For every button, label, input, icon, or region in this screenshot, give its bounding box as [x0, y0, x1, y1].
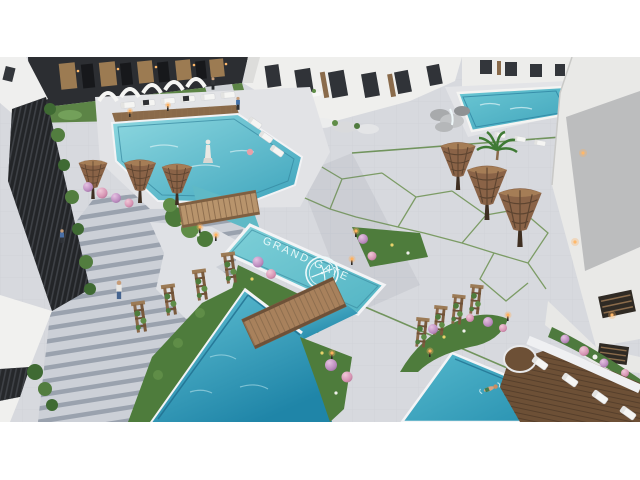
scene-svg: GRAND GATE — [0, 57, 640, 422]
upper-left-pool-area — [95, 79, 330, 209]
person-on-stairs — [60, 229, 64, 243]
architectural-render: GRAND GATE — [0, 0, 640, 480]
person-poolside — [236, 97, 240, 110]
courtyard-scene: GRAND GATE — [0, 57, 640, 422]
letterbox-top — [0, 0, 640, 57]
letterbox-bottom — [0, 422, 640, 480]
pool-float — [247, 149, 253, 155]
person-on-path — [211, 77, 215, 89]
person-on-stairs — [116, 281, 121, 299]
